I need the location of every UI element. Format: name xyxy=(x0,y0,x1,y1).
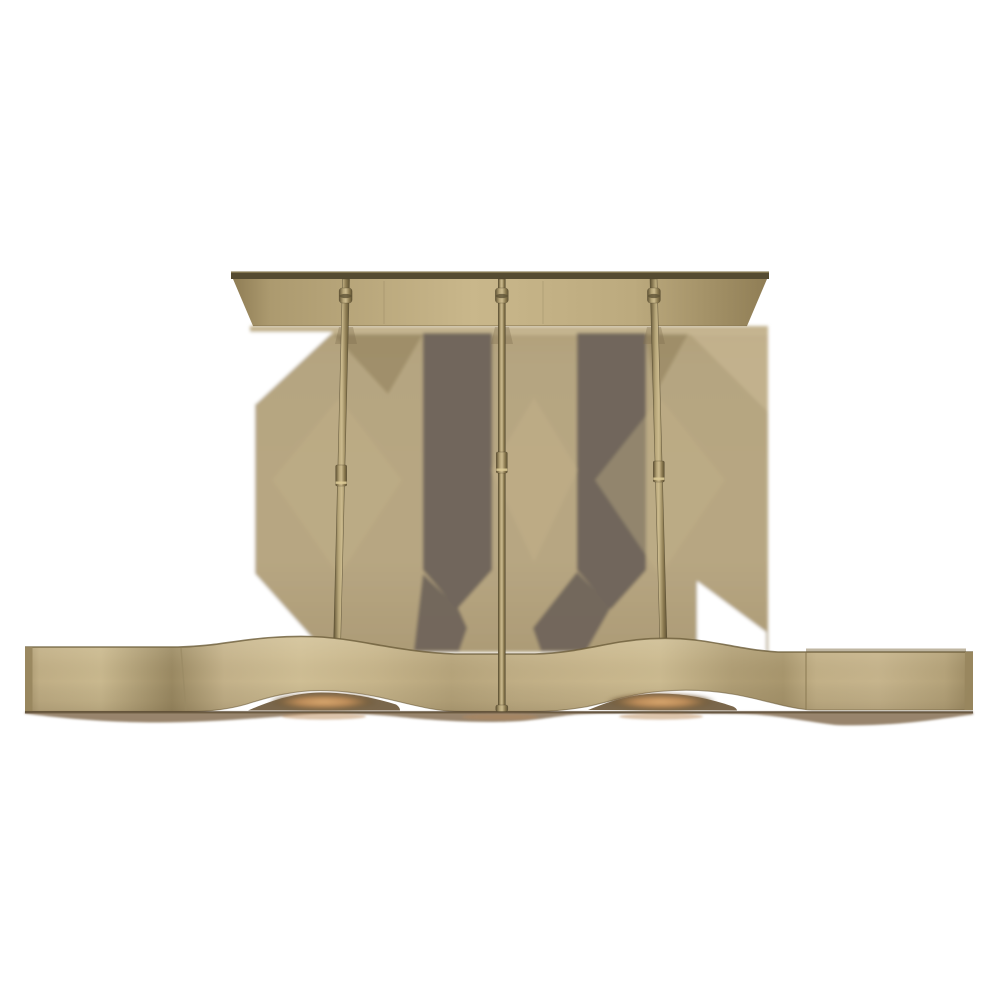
chandelier-product-photo xyxy=(0,0,1000,1000)
white-strip-left xyxy=(249,332,255,574)
canopy-top-highlight xyxy=(231,271,769,272)
product-image xyxy=(0,0,1000,1000)
stem-center-coupler-highlight xyxy=(496,469,507,471)
under-amber-reflection-center xyxy=(462,714,538,720)
stem-center-collar-ring xyxy=(496,294,508,298)
wave-end-cap-left xyxy=(25,647,33,712)
stem-left-collar-ring xyxy=(339,294,351,298)
lamp-glow-left xyxy=(270,694,378,711)
stem-center-foot xyxy=(496,705,508,712)
wave-end-cap-right xyxy=(965,652,974,710)
under-amber-reflection-right xyxy=(619,713,703,719)
under-amber-reflection-left xyxy=(282,713,366,719)
stem-center-rod xyxy=(498,279,505,706)
stem-right-coupler-highlight xyxy=(653,478,664,480)
canopy-top-bar xyxy=(231,272,769,279)
shadow-cast-backdrop xyxy=(249,326,768,652)
lamp-glow-right xyxy=(607,694,715,711)
stem-left-coupler-highlight xyxy=(336,482,347,484)
stem-right-collar-ring xyxy=(648,294,660,298)
shadow-bar-left xyxy=(423,333,492,609)
